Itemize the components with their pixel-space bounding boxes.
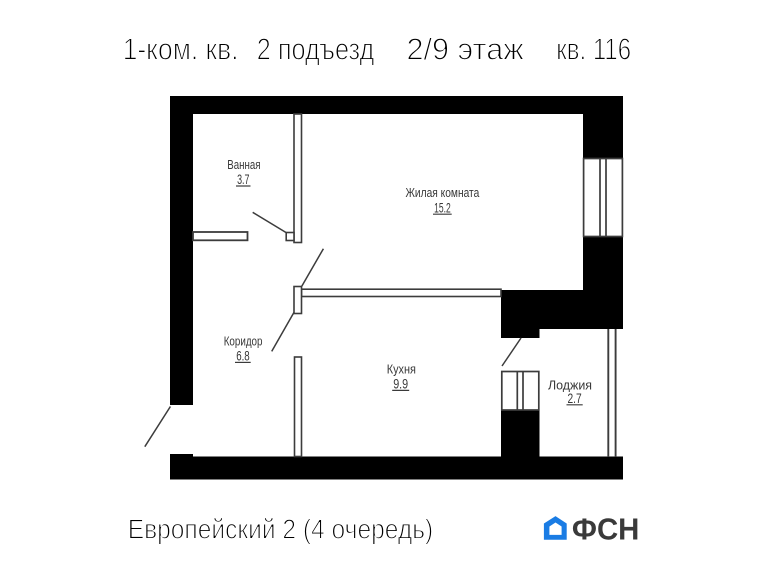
- svg-text:3.7: 3.7: [237, 172, 249, 187]
- svg-text:2 подъезд: 2 подъезд: [257, 33, 375, 67]
- svg-text:Жилая комната: Жилая комната: [406, 185, 480, 200]
- svg-text:9.9: 9.9: [393, 376, 408, 391]
- svg-text:ФСН: ФСН: [572, 513, 640, 547]
- svg-text:2/9 этаж: 2/9 этаж: [407, 33, 525, 67]
- svg-text:Кухня: Кухня: [387, 361, 416, 376]
- svg-text:Европейский 2 (4 очередь): Европейский 2 (4 очередь): [128, 514, 434, 545]
- svg-text:15.2: 15.2: [434, 200, 451, 215]
- svg-text:2.7: 2.7: [568, 391, 582, 406]
- svg-text:кв. 116: кв. 116: [556, 33, 631, 67]
- svg-text:1-ком. кв.: 1-ком. кв.: [123, 33, 239, 67]
- svg-text:Коридор: Коридор: [224, 333, 263, 348]
- svg-text:6.8: 6.8: [236, 348, 250, 363]
- svg-text:Ванная: Ванная: [227, 157, 260, 172]
